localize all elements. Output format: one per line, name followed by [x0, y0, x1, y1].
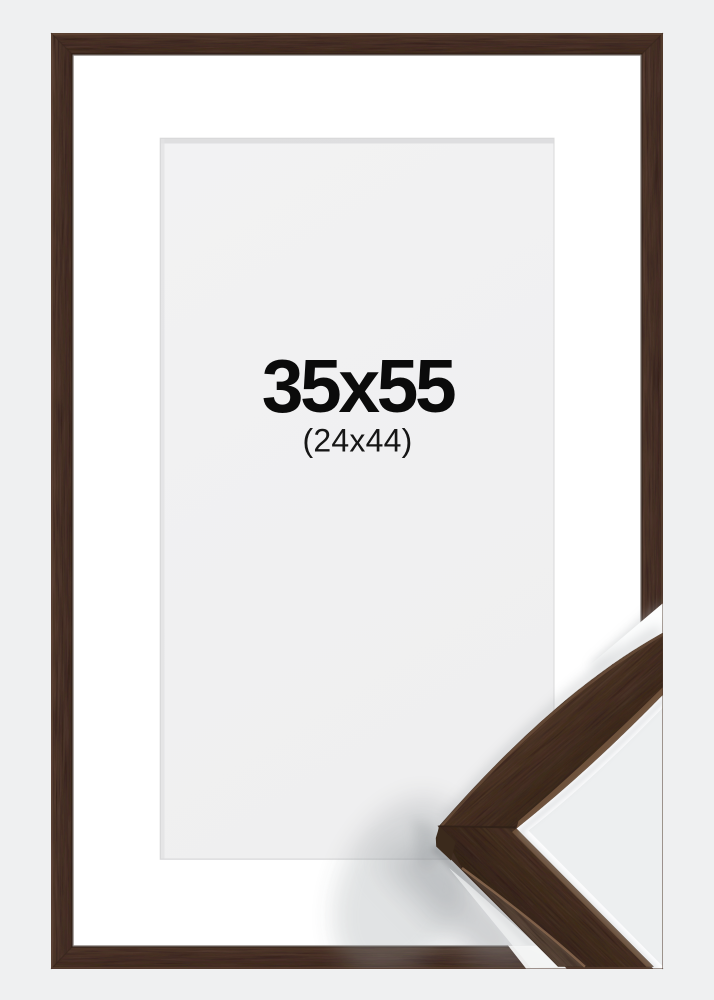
svg-text:(24x44): (24x44)	[303, 423, 413, 459]
svg-text:35x55: 35x55	[262, 344, 455, 428]
